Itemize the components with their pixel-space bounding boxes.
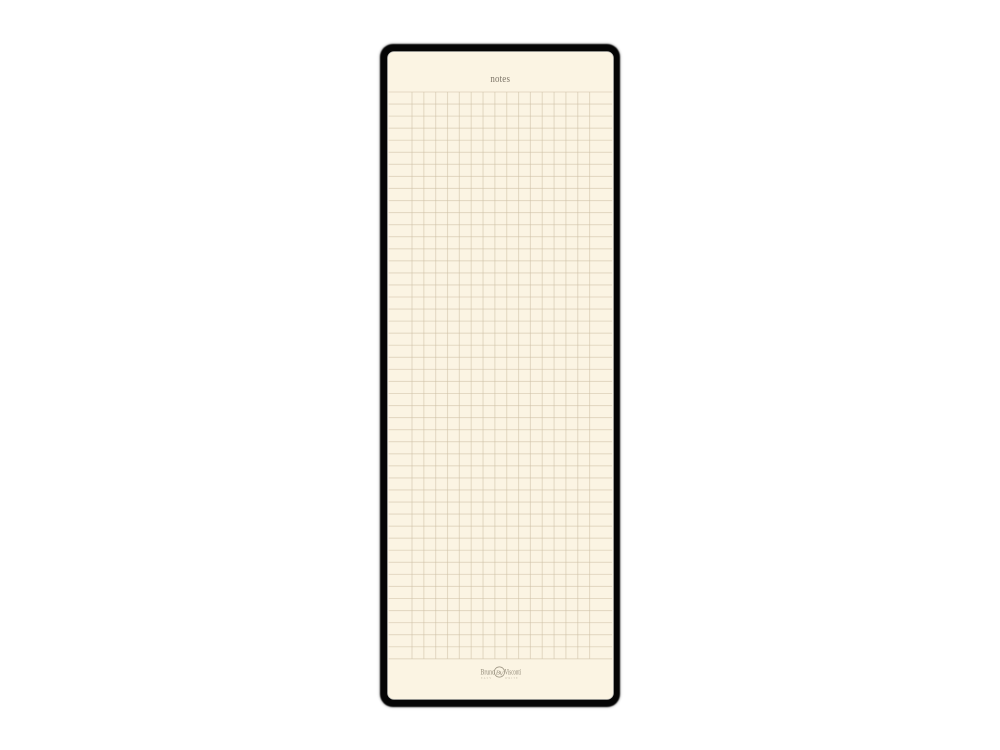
svg-text:Bruno: Bruno bbox=[481, 668, 495, 677]
svg-text:EASY: EASY bbox=[481, 677, 492, 680]
svg-text:V: V bbox=[499, 671, 504, 678]
svg-text:Visconti: Visconti bbox=[505, 668, 522, 677]
svg-text:WRITE: WRITE bbox=[505, 677, 519, 680]
